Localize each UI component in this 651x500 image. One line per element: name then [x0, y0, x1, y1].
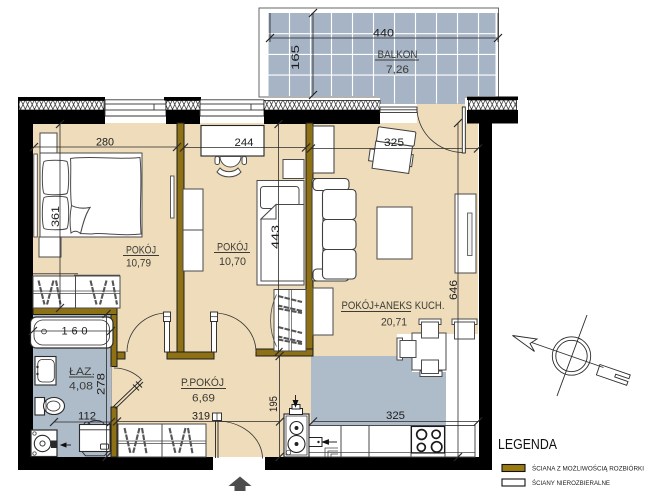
svg-text:7,26: 7,26 — [386, 64, 409, 76]
svg-text:278: 278 — [96, 373, 108, 395]
svg-text:160: 160 — [62, 326, 88, 338]
svg-text:443: 443 — [270, 225, 282, 249]
svg-text:ŚCIANY NIEROZBIERALNE: ŚCIANY NIEROZBIERALNE — [532, 479, 610, 487]
svg-text:280: 280 — [96, 137, 114, 149]
svg-text:LEGENDA: LEGENDA — [498, 437, 557, 453]
svg-text:319: 319 — [192, 411, 210, 423]
svg-text:361: 361 — [50, 206, 62, 227]
svg-text:440: 440 — [373, 28, 394, 40]
svg-text:6,69: 6,69 — [192, 393, 215, 405]
svg-text:195: 195 — [268, 396, 280, 412]
svg-text:ŚCIANA Z MOŻLIWOŚCIĄ ROZBIÓRKI: ŚCIANA Z MOŻLIWOŚCIĄ ROZBIÓRKI — [532, 465, 644, 473]
svg-text:POKÓJ: POKÓJ — [126, 244, 156, 257]
svg-text:325: 325 — [384, 137, 404, 149]
svg-text:165: 165 — [290, 45, 302, 70]
svg-text:POKÓJ: POKÓJ — [217, 241, 248, 254]
svg-text:4,08: 4,08 — [69, 381, 93, 393]
svg-text:10,79: 10,79 — [126, 258, 151, 270]
svg-text:20,71: 20,71 — [381, 317, 407, 329]
svg-text:244: 244 — [235, 137, 254, 149]
svg-text:P.POKÓJ: P.POKÓJ — [181, 376, 224, 389]
svg-text:ŁAZ.: ŁAZ. — [69, 366, 95, 378]
svg-text:112: 112 — [78, 411, 96, 423]
svg-text:BALKON: BALKON — [378, 49, 418, 61]
svg-text:POKÓJ+ANEKS KUCH.: POKÓJ+ANEKS KUCH. — [342, 299, 445, 312]
svg-text:325: 325 — [386, 410, 405, 422]
svg-text:646: 646 — [448, 280, 460, 300]
svg-text:10,70: 10,70 — [219, 256, 246, 268]
